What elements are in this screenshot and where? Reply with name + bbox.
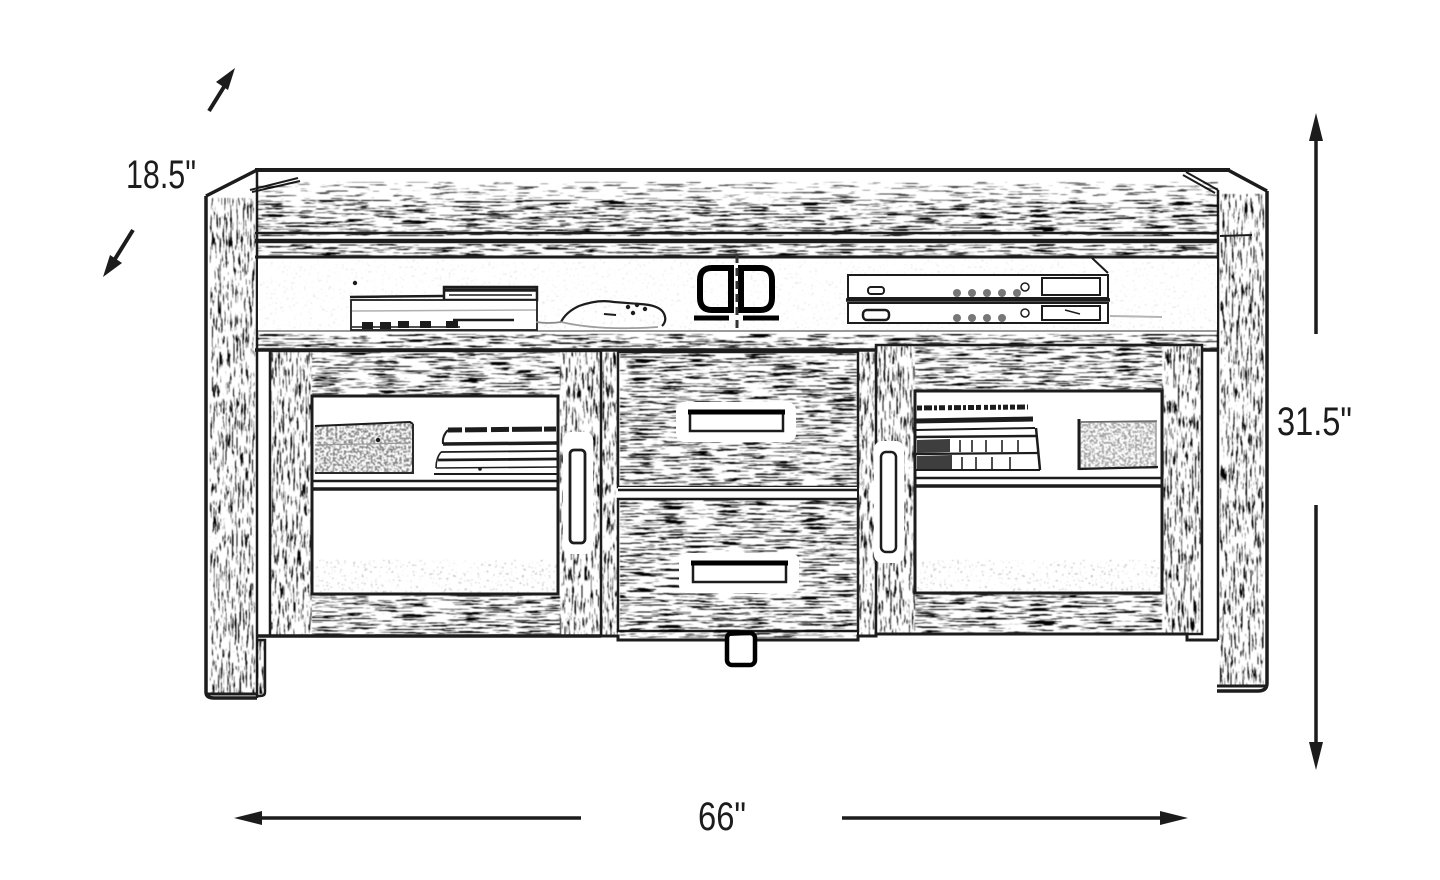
svg-text:66": 66" xyxy=(698,795,746,839)
svg-text:18.5": 18.5" xyxy=(126,153,196,197)
svg-text:31.5": 31.5" xyxy=(1277,400,1352,444)
